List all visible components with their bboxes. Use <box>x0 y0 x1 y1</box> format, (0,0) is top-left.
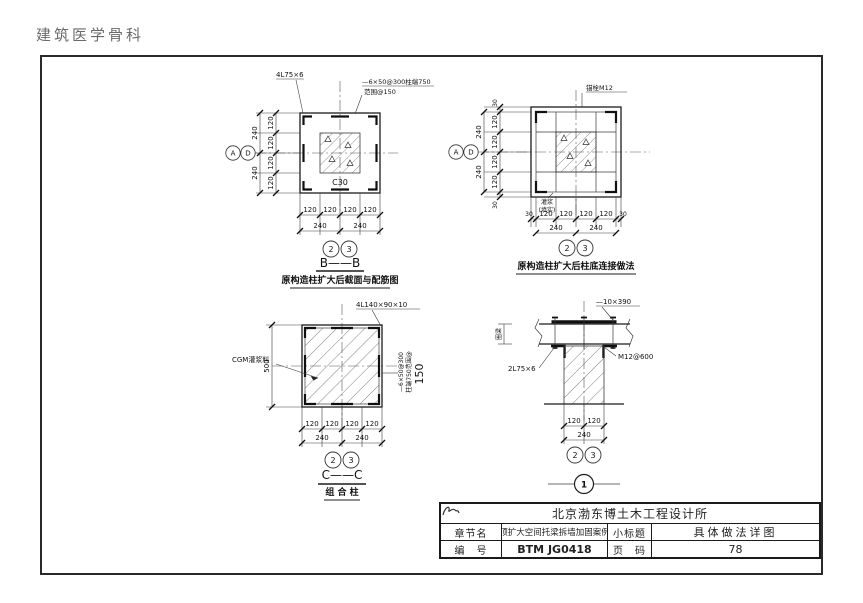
dim-label: 120 <box>579 210 592 218</box>
axis-letter: D <box>468 149 473 157</box>
dim-label: 30 <box>492 99 499 107</box>
dim-label: 120 <box>343 206 356 214</box>
dim-label: 120 <box>363 206 376 214</box>
chapter-label-cell: 章节名 <box>441 523 501 540</box>
chapter-value-cell: 顶扩大空间托梁拆墙加固案例 <box>501 523 607 540</box>
number-value-cell: BTM JG0418 <box>501 540 607 557</box>
dim-label: 240 <box>577 431 590 439</box>
composite-column-hatch <box>305 328 379 404</box>
dim-label: 120 <box>539 210 552 218</box>
dim-label: 120 <box>567 417 580 425</box>
dim-label: 120 <box>303 206 316 214</box>
page-value-cell: 78 <box>651 540 819 557</box>
axis-number: 3 <box>346 245 351 254</box>
detail-number: 1 <box>581 481 587 491</box>
angle-steel-label: 4L140×90×10 <box>356 301 407 309</box>
dim-label: 120 <box>559 210 572 218</box>
dim-label: 240 <box>251 126 259 139</box>
drawing-caption: 原构造柱扩大后柱底连接做法 <box>517 260 634 272</box>
dim-label: 120 <box>323 206 336 214</box>
base-bottom-dimensions: 灌浆 (填实) 30 120 120 120 120 30 240 240 <box>525 193 627 256</box>
subtitle-value-cell: 具体做法详图 <box>651 523 819 540</box>
section-mark-bb: B——B <box>320 256 360 270</box>
axis-letter: A <box>231 150 236 158</box>
dim-label: 120 <box>267 156 275 169</box>
batten-note-line2: 范围@150 <box>364 87 396 96</box>
ringbeam-dimension: 圈梁 <box>495 324 512 344</box>
dim-label: 30 <box>619 211 627 218</box>
section-bb-drawing: C30 4L75×6 —6×50@300柱端750 范围@150 120 <box>226 71 434 288</box>
cc-bottom-dimensions: 120 120 120 120 240 240 2 3 <box>299 407 385 468</box>
dim-label: 240 <box>475 125 483 138</box>
axis-number: 3 <box>590 451 595 460</box>
node-detail-drawing: 圈梁 —10×390 M12@600 2L75×6 120 120 <box>495 298 653 494</box>
section-cc-drawing: 4L140×90×10 CGM灌浆料 500 —6×50@300 柱端750范围… <box>232 301 426 500</box>
dim-label: 240 <box>549 224 562 232</box>
cc-right-notes: —6×50@300 柱端750范围@ 150 <box>382 351 426 392</box>
angle-steel-label: 2L75×6 <box>508 365 536 373</box>
document-header-text: 建筑医学骨科 <box>36 24 144 45</box>
node-bottom-dimensions: 120 120 240 2 3 <box>561 404 607 463</box>
company-logo-icon <box>441 504 461 518</box>
batten-note-line2: 柱端750范围@ <box>405 351 413 392</box>
dim-label: 240 <box>475 165 483 178</box>
bb-bottom-dimensions: 120 120 120 120 240 240 2 3 <box>297 193 383 257</box>
subtitle-label-cell: 小标题 <box>607 523 651 540</box>
base-left-dimensions: 30 120 120 120 120 30 240 240 A D <box>449 99 531 209</box>
dim-label: 240 <box>589 224 602 232</box>
axis-number: 2 <box>572 451 577 460</box>
column-base-drawing: 锚栓M12 30 120 120 120 120 <box>449 83 650 274</box>
company-name: 北京渤东博土木工程设计所 <box>552 505 708 522</box>
dim-label: 120 <box>491 135 499 148</box>
dim-label: 30 <box>492 201 499 209</box>
drawing-canvas: C30 4L75×6 —6×50@300柱端750 范围@150 120 <box>42 57 821 573</box>
dim-label: 120 <box>345 420 358 428</box>
axis-letter: D <box>245 150 250 158</box>
dim-label: 240 <box>355 434 368 442</box>
number-label-cell: 编 号 <box>441 540 501 557</box>
dim-label: 120 <box>491 115 499 128</box>
dim-label: 120 <box>305 420 318 428</box>
axis-number: 2 <box>564 244 569 253</box>
company-row: 北京渤东博土木工程设计所 <box>441 504 819 523</box>
axis-number: 2 <box>330 456 335 465</box>
axis-number: 3 <box>348 456 353 465</box>
section-mark-cc: C——C <box>322 468 363 482</box>
masonry-pier-hatch <box>564 346 604 404</box>
dim-label: 120 <box>491 155 499 168</box>
bb-left-dimensions: 120 120 120 120 240 240 A D <box>226 110 300 196</box>
dim-label: 500 <box>263 359 271 372</box>
dim-label: 120 <box>365 420 378 428</box>
ringbeam-label: 圈梁 <box>495 328 503 340</box>
dim-label: 120 <box>267 136 275 149</box>
dim-label: 120 <box>491 175 499 188</box>
plate-label: —10×390 <box>596 298 631 306</box>
anchor-bolt-label: 锚栓M12 <box>586 83 613 92</box>
grout-label-line1: 灌浆 <box>541 198 553 206</box>
axis-letter: A <box>454 149 459 157</box>
dim-label: 120 <box>267 176 275 189</box>
batten-note-line1: —6×50@300 <box>398 352 405 392</box>
title-block: 北京渤东博土木工程设计所 章节名 顶扩大空间托梁拆墙加固案例 小标题 具体做法详… <box>439 502 821 559</box>
page-label-cell: 页 码 <box>607 540 651 557</box>
drawing-caption: 原构造柱扩大后截面与配筋图 <box>281 274 398 286</box>
dim-label: 240 <box>251 166 259 179</box>
drawing-caption: 组 合 柱 <box>325 486 358 498</box>
batten-note-spacing: 150 <box>413 364 426 385</box>
bolt-label: M12@600 <box>618 353 653 361</box>
dim-label: 30 <box>525 211 533 218</box>
axis-number: 2 <box>328 245 333 254</box>
dim-label: 240 <box>315 434 328 442</box>
dim-label: 120 <box>587 417 600 425</box>
batten-note-line1: —6×50@300柱端750 <box>362 77 431 86</box>
dim-label: 120 <box>267 116 275 129</box>
dim-label: 120 <box>599 210 612 218</box>
dim-label: 240 <box>353 222 366 230</box>
dim-label: 240 <box>313 222 326 230</box>
sheet-border: C30 4L75×6 —6×50@300柱端750 范围@150 120 <box>40 55 823 575</box>
dim-label: 120 <box>325 420 338 428</box>
angle-steel-label: 4L75×6 <box>276 71 304 79</box>
axis-number: 3 <box>582 244 587 253</box>
concrete-grade-label: C30 <box>332 178 348 187</box>
drawing-sheet-page: 建筑医学骨科 <box>0 0 863 603</box>
